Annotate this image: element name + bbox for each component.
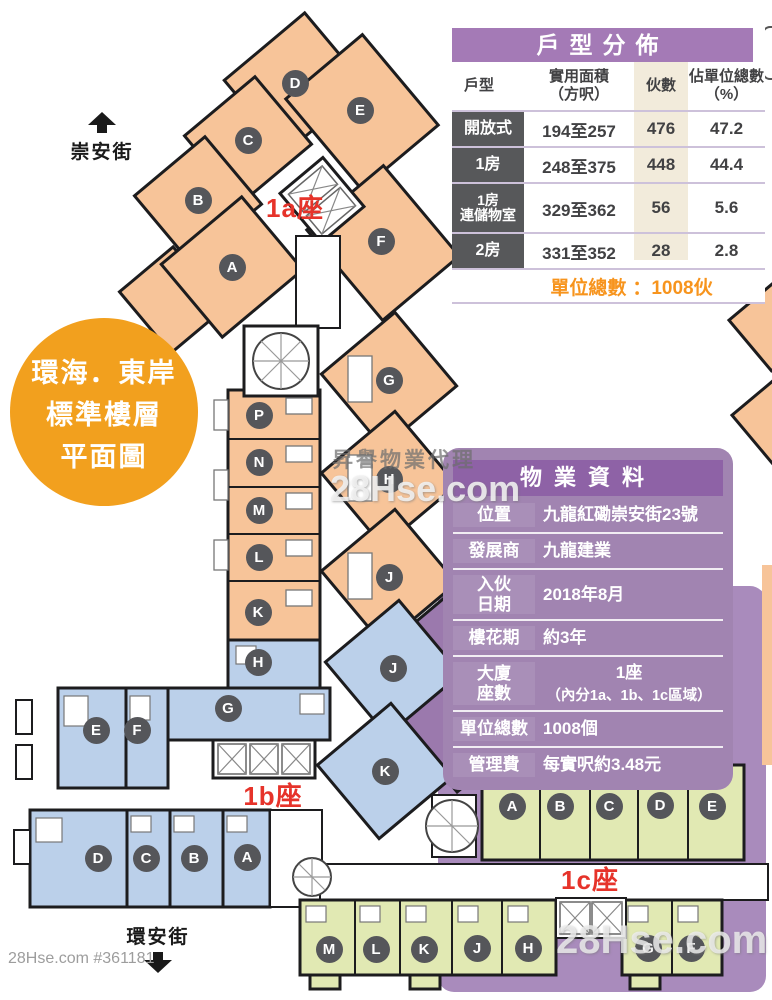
property-row: 單位總數1008個 bbox=[453, 712, 723, 748]
unit-badge-1a-H: H bbox=[376, 466, 403, 493]
count-cell: 28 bbox=[634, 241, 688, 261]
property-label: 位置 bbox=[453, 503, 535, 527]
unit-badge-1b-D: D bbox=[85, 845, 112, 872]
property-label: 單位總數 bbox=[453, 717, 535, 741]
area-cell: 194至257 bbox=[524, 117, 634, 142]
unit-table-header: 戶型 實用面積 （方呎） 伙數 佔單位總數 （%） bbox=[452, 62, 765, 110]
area-cell: 329至362 bbox=[524, 196, 634, 221]
street-label-bottom: 環安街 bbox=[116, 922, 200, 949]
pct-cell: 47.2 bbox=[688, 119, 765, 139]
property-value: 九龍建業 bbox=[535, 540, 723, 562]
property-value-wrap: 每實呎約3.48元 bbox=[535, 754, 723, 776]
unit-badge-1b-J: J bbox=[380, 655, 407, 682]
count-cell: 56 bbox=[634, 198, 688, 218]
property-panel-rows: 位置九龍紅磡崇安街23號發展商九龍建業入伙 日期2018年8月樓花期約3年大廈 … bbox=[453, 498, 723, 782]
unit-badge-1a-N: N bbox=[246, 449, 273, 476]
floorplan-page: ABCDEFGHJKLMNPABCDEFGHJKABCDEFGHJKLM 1a座… bbox=[0, 0, 772, 1000]
badge-line-3: 平面圖 bbox=[61, 435, 148, 474]
unit-badge-1a-C: C bbox=[235, 127, 262, 154]
block-label-1b: 1b座 bbox=[228, 776, 318, 813]
pct-cell: 5.6 bbox=[688, 198, 765, 218]
property-row: 樓花期約3年 bbox=[453, 621, 723, 657]
pct-cell: 44.4 bbox=[688, 155, 765, 175]
unit-badge-1a-F: F bbox=[368, 228, 395, 255]
column-header-pct: 佔單位總數 （%） bbox=[688, 68, 765, 103]
property-value-wrap: 1008個 bbox=[535, 718, 723, 740]
property-value-wrap: 1座（內分1a、1b、1c區域） bbox=[535, 662, 723, 705]
unit-badge-1b-F: F bbox=[124, 717, 151, 744]
property-value: 1座 bbox=[535, 662, 723, 684]
up-arrow-icon bbox=[88, 112, 116, 125]
property-row: 位置九龍紅磡崇安街23號 bbox=[453, 498, 723, 534]
unit-badge-1a-D: D bbox=[282, 70, 309, 97]
property-value-wrap: 九龍建業 bbox=[535, 540, 723, 562]
project-badge: 環海．東岸 標準樓層 平面圖 bbox=[10, 318, 198, 506]
property-value-line2: （內分1a、1b、1c區域） bbox=[535, 684, 723, 705]
unit-badge-1c-F: F bbox=[678, 935, 705, 962]
unit-table-rows: 開放式194至25747647.21房248至37544844.41房 連儲物室… bbox=[452, 110, 765, 268]
unit-table-title: 戶型分佈 bbox=[452, 28, 753, 62]
unit-type-cell: 1房 bbox=[452, 148, 524, 182]
stair-1b bbox=[293, 858, 331, 896]
street-label-top: 崇安街 bbox=[56, 137, 148, 164]
property-row: 入伙 日期2018年8月 bbox=[453, 570, 723, 621]
unit-table-total-row: 單位總數：1008伙 bbox=[452, 268, 765, 304]
count-cell: 448 bbox=[634, 155, 688, 175]
column-header-type: 戶型 bbox=[452, 77, 524, 95]
unit-badge-1c-J: J bbox=[464, 935, 491, 962]
block-label-1c: 1c座 bbox=[545, 860, 635, 897]
unit-badge-1a-A: A bbox=[219, 254, 246, 281]
property-label: 大廈 座數 bbox=[453, 662, 535, 705]
lift-bank-1c bbox=[556, 898, 626, 938]
count-cell: 476 bbox=[634, 119, 688, 139]
property-label: 入伙 日期 bbox=[453, 575, 535, 614]
property-row: 管理費每實呎約3.48元 bbox=[453, 748, 723, 782]
property-value: 約3年 bbox=[535, 627, 723, 649]
unit-badge-1c-B: B bbox=[547, 793, 574, 820]
unit-type-cell: 2房 bbox=[452, 234, 524, 268]
lift-bank-1b bbox=[213, 740, 315, 778]
down-arrow-stem bbox=[153, 952, 163, 960]
unit-badge-1b-K: K bbox=[372, 758, 399, 785]
total-value: ：1008伙 bbox=[632, 273, 712, 300]
unit-badge-1b-E: E bbox=[83, 717, 110, 744]
unit-badge-1b-H: H bbox=[245, 649, 272, 676]
badge-line-2: 標準樓層 bbox=[46, 393, 162, 432]
up-arrow-stem bbox=[97, 125, 107, 133]
column-header-area: 實用面積 （方呎） bbox=[524, 68, 634, 103]
unit-badge-1a-L: L bbox=[246, 544, 273, 571]
unit-type-cell: 開放式 bbox=[452, 112, 524, 146]
unit-badge-1c-H: H bbox=[515, 935, 542, 962]
corridor-1a bbox=[296, 236, 340, 328]
unit-badge-1b-A: A bbox=[234, 844, 261, 871]
unit-badge-1c-K: K bbox=[411, 936, 438, 963]
unit-type-row: 開放式194至25747647.2 bbox=[452, 110, 765, 146]
unit-badge-1c-M: M bbox=[316, 936, 343, 963]
property-value-wrap: 2018年8月 bbox=[535, 584, 723, 606]
corridor-1c bbox=[320, 864, 768, 900]
unit-badge-1c-E: E bbox=[699, 793, 726, 820]
unit-type-row: 1房248至37544844.4 bbox=[452, 146, 765, 182]
unit-badge-1a-P: P bbox=[246, 402, 273, 429]
unit-badge-1a-G: G bbox=[376, 367, 403, 394]
unit-badge-1a-B: B bbox=[185, 187, 212, 214]
total-label: 單位總數 bbox=[550, 273, 626, 300]
unit-distribution-table: 戶型分佈 戶型 實用面積 （方呎） 伙數 佔單位總數 （%） 開放式194至25… bbox=[452, 28, 765, 304]
area-cell: 248至375 bbox=[524, 153, 634, 178]
property-value: 每實呎約3.48元 bbox=[535, 754, 723, 776]
property-panel-title: 物業資料 bbox=[453, 460, 723, 496]
unit-badge-1a-J: J bbox=[376, 564, 403, 591]
column-header-count: 伙數 bbox=[634, 77, 688, 95]
property-label: 管理費 bbox=[453, 753, 535, 777]
property-row: 大廈 座數1座（內分1a、1b、1c區域） bbox=[453, 657, 723, 712]
stair-1c bbox=[426, 795, 478, 857]
unit-type-cell: 1房 連儲物室 bbox=[452, 184, 524, 232]
unit-badge-1a-M: M bbox=[246, 497, 273, 524]
block-label-1a: 1a座 bbox=[250, 188, 340, 225]
unit-badge-1a-K: K bbox=[245, 599, 272, 626]
unit-badge-1b-B: B bbox=[181, 845, 208, 872]
balconies-1b bbox=[14, 700, 32, 864]
property-label: 樓花期 bbox=[453, 626, 535, 650]
property-value-wrap: 約3年 bbox=[535, 627, 723, 649]
street-marker-bottom: 環安街 bbox=[116, 922, 200, 973]
unit-badge-1c-L: L bbox=[363, 936, 390, 963]
area-cell: 331至352 bbox=[524, 239, 634, 264]
down-arrow-icon bbox=[144, 960, 172, 973]
badge-line-1: 環海．東岸 bbox=[32, 351, 177, 390]
property-info-panel: 物業資料 位置九龍紅磡崇安街23號發展商九龍建業入伙 日期2018年8月樓花期約… bbox=[443, 448, 733, 790]
unit-badge-1b-C: C bbox=[133, 845, 160, 872]
unit-badge-1c-A: A bbox=[499, 793, 526, 820]
unit-badge-1c-G: G bbox=[635, 935, 662, 962]
pct-cell: 2.8 bbox=[688, 241, 765, 261]
property-value: 2018年8月 bbox=[535, 584, 723, 606]
street-marker-top: 崇安街 bbox=[56, 112, 148, 164]
unit-badge-1b-G: G bbox=[215, 695, 242, 722]
unit-type-row: 1房 連儲物室329至362565.6 bbox=[452, 182, 765, 232]
stair-core-mid bbox=[244, 326, 318, 396]
property-value: 九龍紅磡崇安街23號 bbox=[535, 504, 723, 526]
property-value: 1008個 bbox=[535, 718, 723, 740]
property-row: 發展商九龍建業 bbox=[453, 534, 723, 570]
property-value-wrap: 九龍紅磡崇安街23號 bbox=[535, 504, 723, 526]
unit-type-row: 2房331至352282.8 bbox=[452, 232, 765, 268]
unit-badge-1a-E: E bbox=[347, 97, 374, 124]
unit-badge-1c-D: D bbox=[647, 792, 674, 819]
unit-badge-1c-C: C bbox=[596, 793, 623, 820]
property-label: 發展商 bbox=[453, 539, 535, 563]
